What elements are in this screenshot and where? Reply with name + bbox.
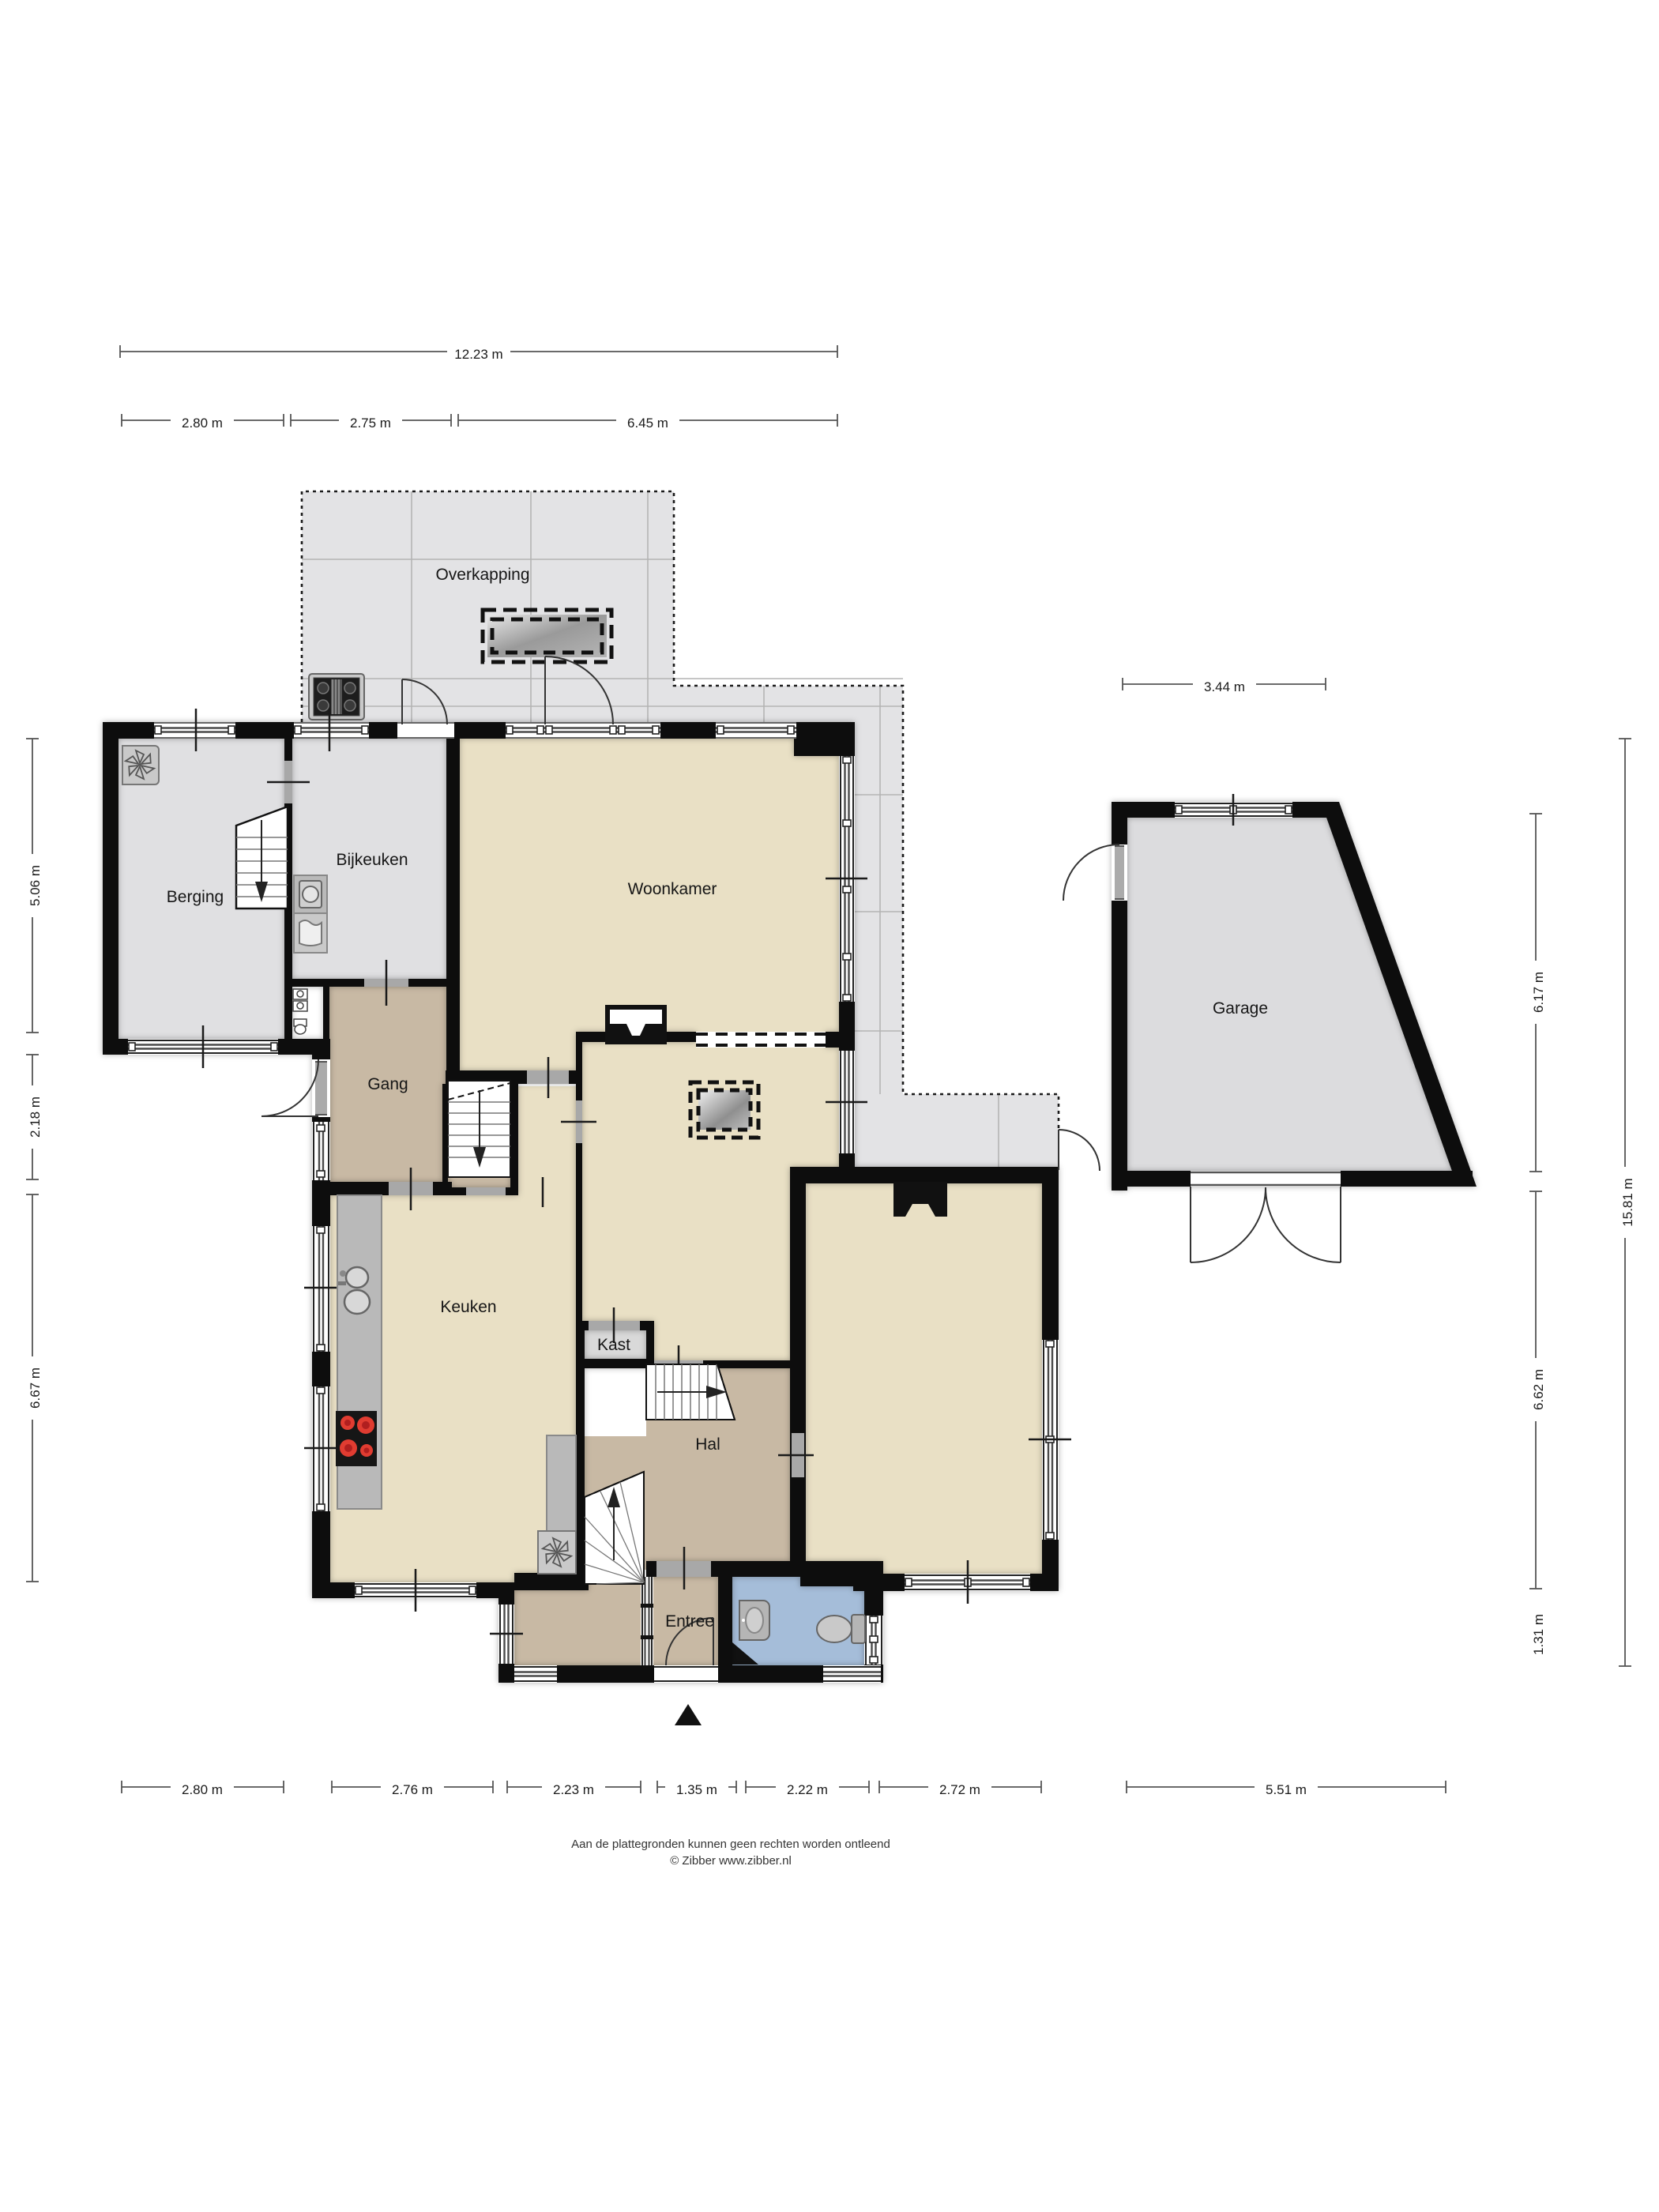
- svg-text:Hal: Hal: [695, 1435, 720, 1454]
- svg-text:6.67 m: 6.67 m: [28, 1367, 43, 1409]
- svg-text:2.18 m: 2.18 m: [28, 1097, 43, 1138]
- svg-text:6.45 m: 6.45 m: [627, 416, 668, 431]
- svg-text:2.75 m: 2.75 m: [350, 416, 391, 431]
- svg-text:6.17 m: 6.17 m: [1531, 972, 1546, 1013]
- svg-text:Entree: Entree: [665, 1612, 714, 1631]
- svg-text:1.35 m: 1.35 m: [676, 1782, 717, 1797]
- svg-text:12.23 m: 12.23 m: [454, 347, 502, 362]
- svg-text:Berging: Berging: [167, 888, 224, 906]
- svg-text:2.80 m: 2.80 m: [182, 416, 223, 431]
- svg-text:© Zibber www.zibber.nl: © Zibber www.zibber.nl: [670, 1854, 792, 1868]
- svg-text:1.31 m: 1.31 m: [1531, 1614, 1546, 1655]
- svg-text:2.23 m: 2.23 m: [553, 1782, 594, 1797]
- svg-text:Kast: Kast: [597, 1336, 630, 1354]
- svg-text:Garage: Garage: [1213, 999, 1268, 1018]
- svg-text:Overkapping: Overkapping: [435, 566, 529, 584]
- svg-text:Bijkeuken: Bijkeuken: [336, 851, 408, 869]
- svg-text:3.44 m: 3.44 m: [1204, 679, 1245, 694]
- svg-text:Gang: Gang: [367, 1075, 408, 1093]
- svg-text:2.72 m: 2.72 m: [939, 1782, 980, 1797]
- svg-text:Keuken: Keuken: [440, 1298, 496, 1316]
- svg-text:Aan de plattegronden kunnen ge: Aan de plattegronden kunnen geen rechten…: [571, 1838, 890, 1851]
- svg-text:5.51 m: 5.51 m: [1266, 1782, 1307, 1797]
- svg-text:15.81 m: 15.81 m: [1620, 1178, 1635, 1226]
- svg-text:5.06 m: 5.06 m: [28, 865, 43, 906]
- svg-text:6.62 m: 6.62 m: [1531, 1369, 1546, 1410]
- svg-text:2.22 m: 2.22 m: [787, 1782, 828, 1797]
- svg-text:2.80 m: 2.80 m: [182, 1782, 223, 1797]
- svg-text:2.76 m: 2.76 m: [392, 1782, 433, 1797]
- svg-text:Woonkamer: Woonkamer: [628, 880, 717, 898]
